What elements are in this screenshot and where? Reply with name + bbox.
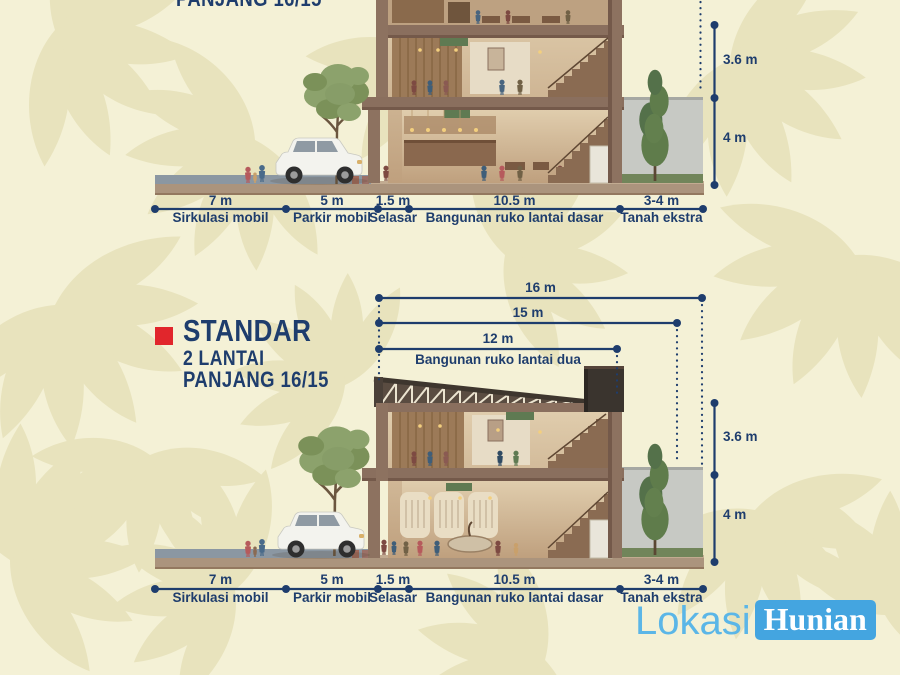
dim-value-tanah-bottom: 3-4 m	[612, 573, 711, 587]
dim-value-bangunan-bottom: 10.5 m	[409, 573, 620, 587]
logo-text-hunian: Hunian	[764, 601, 867, 637]
height-dim-upper-top: 3.6 m	[723, 53, 758, 67]
logo-text-lokasi: Lokasi	[635, 601, 751, 641]
height-dim-lower-bottom: 4 m	[723, 508, 746, 522]
dim-label-sirkulasi-top: Sirkulasi mobil	[155, 211, 286, 225]
top-section-partial-title: PANJANG 16/15	[176, 0, 322, 10]
dim-value-sirkulasi-bottom: 7 m	[155, 573, 286, 587]
span-dim-12m: 12 m	[379, 332, 617, 346]
span-dim-16m: 16 m	[379, 281, 702, 295]
lokasihunian-logo: Lokasi Hunian	[635, 600, 876, 641]
height-dim-lower-top: 4 m	[723, 131, 746, 145]
span-dim-15m: 15 m	[379, 306, 677, 320]
dim-label-tanah-top: Tanah ekstra	[612, 211, 711, 225]
dim-label-sirkulasi-bottom: Sirkulasi mobil	[155, 591, 286, 605]
dim-label-bangunan-bottom: Bangunan ruko lantai dasar	[409, 591, 620, 605]
dim-value-sirkulasi-top: 7 m	[155, 194, 286, 208]
span-dim-12m-label: Bangunan ruko lantai dua	[379, 353, 617, 367]
height-dim-upper-bottom: 3.6 m	[723, 430, 758, 444]
dim-value-tanah-top: 3-4 m	[612, 194, 711, 208]
dim-label-bangunan-top: Bangunan ruko lantai dasar	[409, 211, 620, 225]
section-title-lantai: 2 LANTAI	[183, 348, 264, 369]
logo-box-hunian: Hunian	[755, 600, 876, 640]
infographic-canvas: PANJANG 16/15 7 m 5 m 1.5 m 10.5 m 3-4 m…	[0, 0, 900, 675]
building-render-top	[151, 0, 719, 213]
title-bullet-square	[155, 327, 173, 345]
building-cross-section-top	[362, 0, 624, 183]
dim-value-bangunan-top: 10.5 m	[409, 194, 620, 208]
section-title-standar: STANDAR	[183, 316, 311, 346]
building-cross-section-bottom	[362, 366, 624, 558]
section-title-panjang: PANJANG 16/15	[183, 369, 329, 391]
